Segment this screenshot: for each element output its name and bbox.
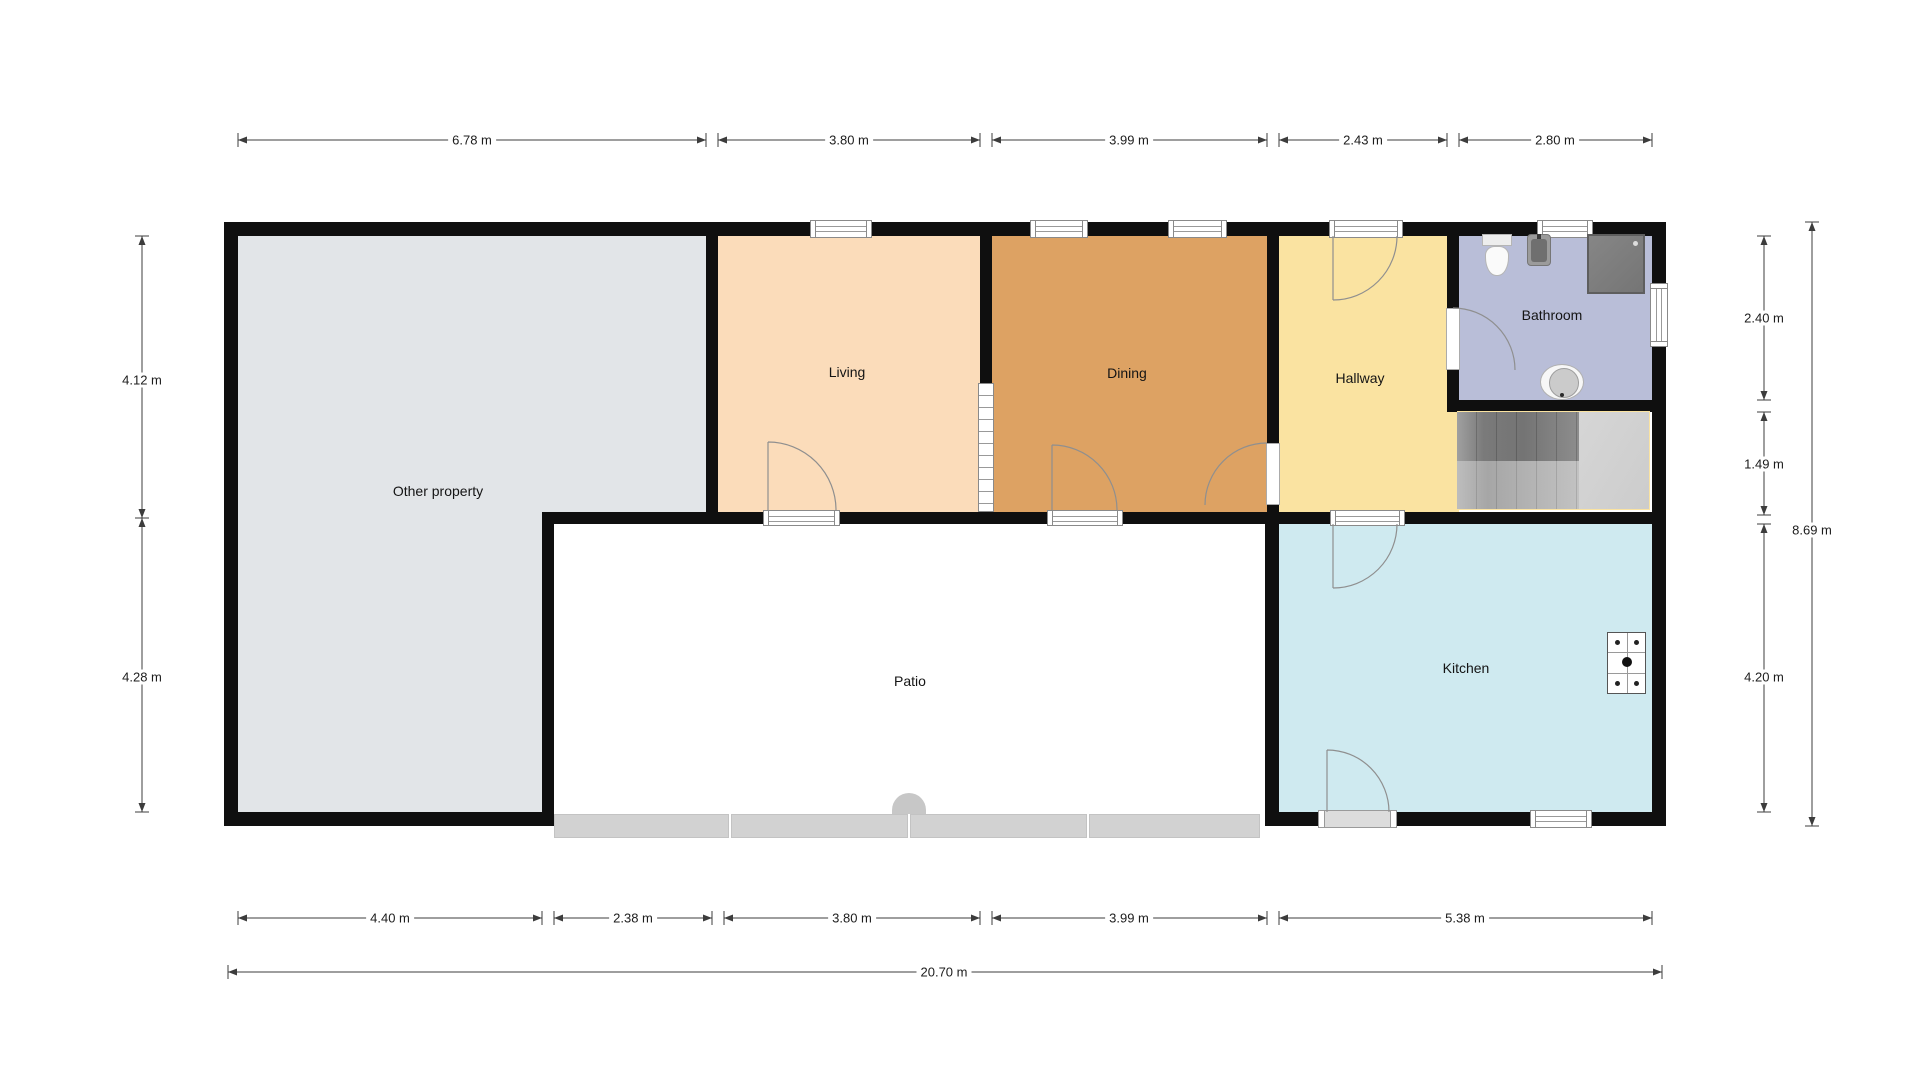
window-bathroom-right[interactable]	[1650, 283, 1668, 347]
room-other-property[interactable]	[238, 236, 706, 512]
burner-dot-large	[1622, 657, 1632, 667]
stair-flight-lower	[1457, 461, 1579, 509]
dim-bottom-3: 3.99 m	[1105, 911, 1153, 926]
dim-top-0: 6.78 m	[448, 133, 496, 148]
dim-top-4: 2.80 m	[1531, 133, 1579, 148]
door-dining-patio-frame[interactable]	[1047, 510, 1123, 526]
room-label-bathroom: Bathroom	[1522, 307, 1583, 323]
window-kitchen-bottom[interactable]	[1530, 810, 1592, 828]
door-dining-hallway-opening[interactable]	[1266, 443, 1280, 505]
wall-exterior-top	[224, 222, 1666, 236]
staircase[interactable]	[1457, 411, 1650, 510]
entry-door-frame[interactable]	[1329, 220, 1403, 238]
dim-top-2: 3.99 m	[1105, 133, 1153, 148]
burner-dot	[1615, 681, 1620, 686]
washbasin-bowl	[1549, 368, 1579, 398]
room-other-property-lower[interactable]	[238, 512, 542, 812]
room-patio[interactable]	[554, 524, 1265, 812]
wall-exterior-left	[224, 222, 238, 826]
dim-left-0: 4.12 m	[118, 373, 166, 388]
sink-icon[interactable]	[1527, 234, 1551, 266]
sink-tap	[1537, 234, 1541, 239]
washbasin-icon[interactable]	[1540, 364, 1584, 400]
patio-fence-segment[interactable]	[554, 814, 729, 838]
room-label-dining: Dining	[1107, 365, 1147, 381]
patio-fence-segment[interactable]	[910, 814, 1087, 838]
washbasin-drain	[1560, 393, 1564, 397]
dim-bottom-1: 2.38 m	[609, 911, 657, 926]
dim-bottom-0: 4.40 m	[366, 911, 414, 926]
dim-right-0: 2.40 m	[1740, 311, 1788, 326]
stair-flight-upper	[1457, 412, 1579, 461]
dim-top-3: 2.43 m	[1339, 133, 1387, 148]
dim-top-1: 3.80 m	[825, 133, 873, 148]
dim-bottom-2: 3.80 m	[828, 911, 876, 926]
door-stairs-kitchen-frame[interactable]	[1330, 510, 1405, 526]
burner-dot	[1634, 640, 1639, 645]
dim-right-total: 8.69 m	[1788, 523, 1836, 538]
dim-right-1: 1.49 m	[1740, 457, 1788, 472]
burner-dot	[1615, 640, 1620, 645]
burner-dot	[1634, 681, 1639, 686]
room-label-living: Living	[829, 364, 866, 380]
stair-landing	[1579, 412, 1649, 509]
toilet-icon[interactable]	[1482, 234, 1512, 246]
patio-fence-segment[interactable]	[731, 814, 908, 838]
door-kitchen-patio-frame[interactable]	[1318, 810, 1397, 828]
window-dining-top-2[interactable]	[1168, 220, 1227, 238]
stove-icon[interactable]	[1607, 632, 1646, 694]
floor-plan-canvas: Other property Living Dining Hallway Bat…	[0, 0, 1920, 1080]
window-dining-top-1[interactable]	[1030, 220, 1088, 238]
shower-icon[interactable]	[1587, 234, 1645, 294]
wall-exterior-bottom-left	[224, 812, 554, 826]
shower-head	[1633, 241, 1638, 246]
wall-otherproperty-living	[706, 236, 718, 512]
wall-patio-left	[542, 512, 554, 826]
door-living-patio-frame[interactable]	[763, 510, 840, 526]
room-label-other-property: Other property	[393, 483, 483, 499]
wall-patio-kitchen	[1265, 512, 1279, 826]
dim-bottom-4: 5.38 m	[1441, 911, 1489, 926]
dim-right-2: 4.20 m	[1740, 670, 1788, 685]
room-label-hallway: Hallway	[1335, 370, 1384, 386]
room-label-kitchen: Kitchen	[1443, 660, 1490, 676]
sink-basin	[1531, 239, 1547, 262]
dim-left-1: 4.28 m	[118, 670, 166, 685]
room-label-patio: Patio	[894, 673, 926, 689]
patio-fence-segment[interactable]	[1089, 814, 1260, 838]
door-hallway-bathroom-opening[interactable]	[1446, 308, 1460, 370]
interior-window-living-dining[interactable]	[978, 383, 994, 512]
dim-total-width: 20.70 m	[917, 965, 972, 980]
window-living-top[interactable]	[810, 220, 872, 238]
